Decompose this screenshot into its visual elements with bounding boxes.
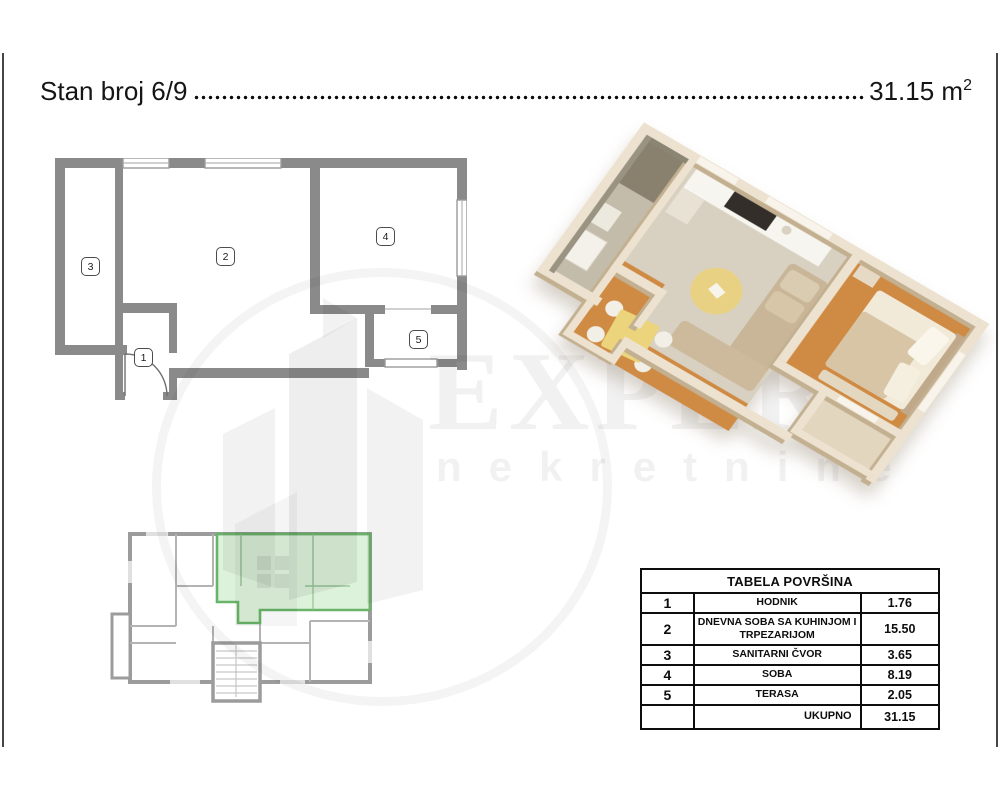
- table-row: 1 HODNIK 1.76: [641, 593, 939, 613]
- floor-plan-3d: [515, 105, 985, 525]
- floor-plan-2d-drawing: [55, 158, 467, 406]
- room-label-5: 5: [409, 330, 428, 349]
- total-area-value: 31.15 m2: [869, 78, 972, 104]
- row-number: 5: [641, 685, 694, 705]
- room-label-1: 1: [134, 348, 153, 367]
- total-value: 31.15: [861, 705, 939, 729]
- superscript-2: 2: [963, 77, 972, 94]
- building-position-plan: [110, 531, 372, 706]
- row-area: 15.50: [861, 613, 939, 645]
- row-name: SANITARNI ČVOR: [694, 645, 861, 665]
- page-title: Stan broj 6/9: [40, 78, 187, 104]
- position-plan-drawing: [110, 531, 372, 706]
- row-area: 3.65: [861, 645, 939, 665]
- table-row: 3 SANITARNI ČVOR 3.65: [641, 645, 939, 665]
- total-empty-cell: [641, 705, 694, 729]
- row-area: 8.19: [861, 665, 939, 685]
- row-name: TERASA: [694, 685, 861, 705]
- row-area: 2.05: [861, 685, 939, 705]
- row-name: DNEVNA SOBA SA KUHINJOM I TRPEZARIJOM: [694, 613, 861, 645]
- row-number: 2: [641, 613, 694, 645]
- area-table-header-row: TABELA POVRŠINA: [641, 569, 939, 593]
- row-number: 3: [641, 645, 694, 665]
- page-border-left: [2, 53, 4, 747]
- area-table-title: TABELA POVRŠINA: [641, 569, 939, 593]
- row-name: SOBA: [694, 665, 861, 685]
- row-number: 1: [641, 593, 694, 613]
- room-label-3: 3: [81, 257, 100, 276]
- table-total-row: UKUPNO 31.15: [641, 705, 939, 729]
- room-label-4: 4: [376, 227, 395, 246]
- table-row: 4 SOBA 8.19: [641, 665, 939, 685]
- row-name: HODNIK: [694, 593, 861, 613]
- page-border-right: [996, 53, 998, 747]
- row-area: 1.76: [861, 593, 939, 613]
- highlighted-unit: [217, 534, 370, 623]
- dotted-leader: [193, 94, 865, 101]
- table-row: 2 DNEVNA SOBA SA KUHINJOM I TRPEZARIJOM …: [641, 613, 939, 645]
- floor-plan-2d: 1 2 3 4 5: [55, 158, 467, 406]
- table-row: 5 TERASA 2.05: [641, 685, 939, 705]
- row-number: 4: [641, 665, 694, 685]
- floor-plan-document: { "title": { "label": "Stan broj 6/9", "…: [0, 0, 1000, 800]
- area-table: TABELA POVRŠINA 1 HODNIK 1.76 2 DNEVNA S…: [640, 568, 940, 730]
- total-label: UKUPNO: [694, 705, 861, 729]
- title-row: Stan broj 6/9 31.15 m2: [40, 64, 972, 104]
- room-label-2: 2: [216, 247, 235, 266]
- floor-plan-3d-drawing: [511, 122, 990, 508]
